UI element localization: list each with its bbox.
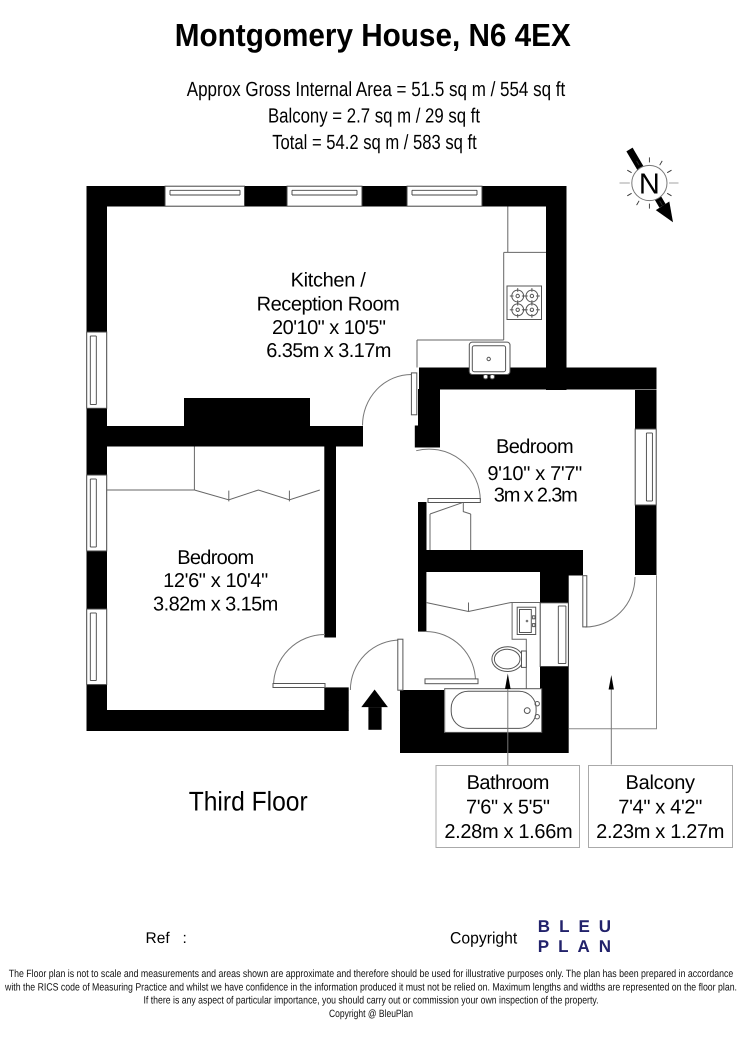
svg-text:Approx Gross Internal Area = 5: Approx Gross Internal Area = 51.5 sq m /… xyxy=(187,78,566,101)
svg-text:Copyright: Copyright xyxy=(450,929,518,947)
svg-text:Copyright @ BleuPlan: Copyright @ BleuPlan xyxy=(329,1008,413,1020)
svg-text:Kitchen /: Kitchen / xyxy=(291,269,367,291)
svg-text:Ref :: Ref : xyxy=(146,930,187,947)
svg-text:Reception Room: Reception Room xyxy=(257,294,400,316)
svg-text:Montgomery House, N6 4EX: Montgomery House, N6 4EX xyxy=(175,17,572,53)
svg-text:6.35m x 3.17m: 6.35m x 3.17m xyxy=(266,340,391,362)
svg-text:Bathroom: Bathroom xyxy=(467,772,550,794)
svg-text:PLAN: PLAN xyxy=(538,937,620,956)
svg-text:Total = 54.2 sq m / 583 sq ft: Total = 54.2 sq m / 583 sq ft xyxy=(272,131,477,154)
svg-text:12'6" x 10'4": 12'6" x 10'4" xyxy=(163,570,268,592)
svg-text:Bedroom: Bedroom xyxy=(496,436,574,458)
svg-text:N: N xyxy=(639,169,660,201)
svg-text:Bedroom: Bedroom xyxy=(177,547,254,569)
svg-text:BLEU: BLEU xyxy=(538,917,620,936)
svg-text:Balcony = 2.7 sq m / 29 sq ft: Balcony = 2.7 sq m / 29 sq ft xyxy=(268,104,480,127)
svg-text:20'10" x 10'5": 20'10" x 10'5" xyxy=(272,317,386,339)
svg-text:Balcony: Balcony xyxy=(626,772,696,794)
svg-text:If there is any aspect of part: If there is any aspect of particular imp… xyxy=(144,995,599,1007)
svg-text:2.28m x 1.66m: 2.28m x 1.66m xyxy=(444,821,572,843)
svg-text:3m x 2.3m: 3m x 2.3m xyxy=(494,485,578,507)
svg-text:Third Floor: Third Floor xyxy=(189,786,308,816)
svg-text:with the RICS code of Measurin: with the RICS code of Measuring Practice… xyxy=(4,982,737,994)
svg-text:3.82m x 3.15m: 3.82m x 3.15m xyxy=(153,593,278,615)
svg-text:9'10" x 7'7": 9'10" x 7'7" xyxy=(487,463,582,485)
svg-text:7'6" x 5'5": 7'6" x 5'5" xyxy=(466,797,550,819)
svg-text:2.23m x 1.27m: 2.23m x 1.27m xyxy=(596,821,724,843)
svg-text:The Floor plan is not to scale: The Floor plan is not to scale and measu… xyxy=(9,968,734,980)
svg-text:7'4" x 4'2": 7'4" x 4'2" xyxy=(618,797,702,819)
